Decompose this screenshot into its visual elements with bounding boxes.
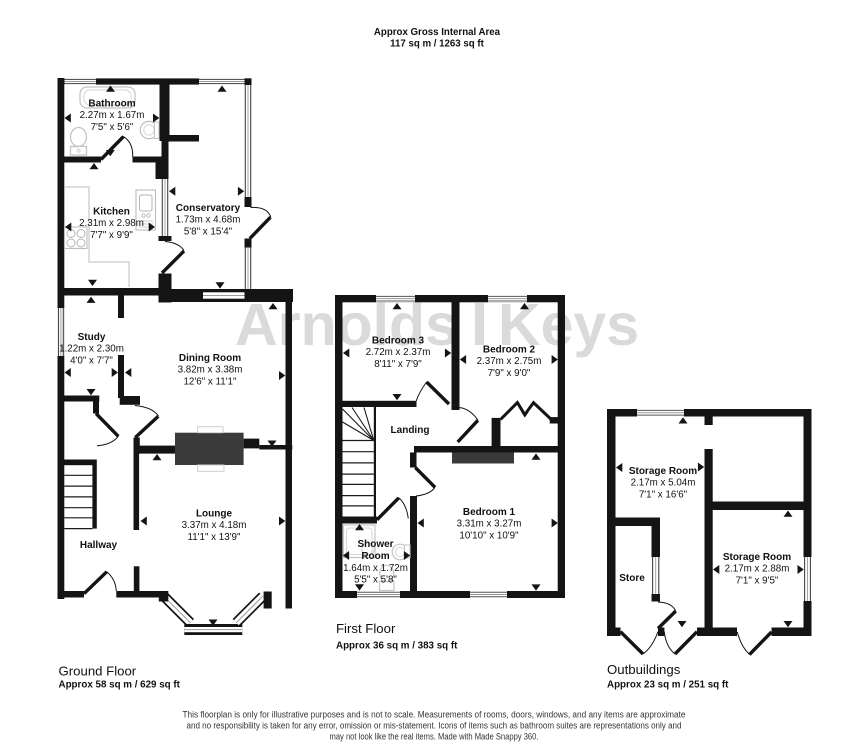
svg-text:7'1" x 9'5": 7'1" x 9'5" (736, 575, 779, 586)
svg-text:Storage Room: Storage Room (723, 552, 791, 563)
svg-text:Approx 58 sq m / 629 sq ft: Approx 58 sq m / 629 sq ft (59, 680, 181, 691)
svg-text:Hallway: Hallway (80, 540, 118, 551)
svg-text:3.37m x 4.18m: 3.37m x 4.18m (182, 520, 247, 531)
svg-text:Ground Floor: Ground Floor (59, 664, 137, 679)
svg-text:Bedroom 3: Bedroom 3 (372, 336, 425, 347)
svg-text:10'10" x 10'9": 10'10" x 10'9" (459, 530, 519, 541)
svg-text:2.72m x 2.37m: 2.72m x 2.37m (366, 347, 431, 358)
svg-text:Room: Room (361, 551, 389, 562)
svg-text:Kitchen: Kitchen (93, 207, 130, 218)
svg-text:1.64m x 1.72m: 1.64m x 1.72m (343, 563, 408, 574)
svg-text:2.27m x 1.67m: 2.27m x 1.67m (80, 110, 145, 121)
svg-text:Store: Store (619, 573, 645, 584)
svg-text:Storage Room: Storage Room (629, 466, 697, 477)
svg-text:Shower: Shower (357, 539, 393, 550)
svg-text:Landing: Landing (391, 425, 430, 436)
svg-text:and no responsibility is taken: and no responsibility is taken for any e… (187, 721, 682, 731)
svg-text:First Floor: First Floor (336, 621, 396, 636)
svg-text:5'8" x 15'4": 5'8" x 15'4" (184, 226, 233, 237)
svg-text:Approx 23 sq m / 251 sq ft: Approx 23 sq m / 251 sq ft (607, 680, 729, 691)
svg-text:Bedroom 1: Bedroom 1 (463, 507, 516, 518)
svg-text:117 sq m / 1263 sq ft: 117 sq m / 1263 sq ft (390, 39, 484, 50)
svg-text:Outbuildings: Outbuildings (607, 662, 681, 677)
svg-text:3.31m x 3.27m: 3.31m x 3.27m (457, 519, 522, 530)
svg-text:4'0" x 7'7": 4'0" x 7'7" (70, 355, 113, 366)
svg-text:1.73m x 4.68m: 1.73m x 4.68m (176, 215, 241, 226)
svg-text:Bedroom 2: Bedroom 2 (483, 345, 536, 356)
svg-text:7'9" x 9'0": 7'9" x 9'0" (488, 368, 531, 379)
svg-text:7'1" x 16'6": 7'1" x 16'6" (639, 489, 688, 500)
svg-text:Approx 36 sq m / 383 sq ft: Approx 36 sq m / 383 sq ft (336, 641, 458, 652)
svg-text:Conservatory: Conservatory (176, 203, 241, 214)
svg-text:Dining Room: Dining Room (179, 353, 241, 364)
svg-text:Approx Gross Internal Area: Approx Gross Internal Area (374, 27, 501, 38)
svg-text:3.82m x 3.38m: 3.82m x 3.38m (178, 365, 243, 376)
svg-text:may not look like the real ite: may not look like the real items. Made w… (330, 732, 539, 742)
svg-text:2.37m x 2.75m: 2.37m x 2.75m (477, 356, 542, 367)
svg-text:8'11" x 7'9": 8'11" x 7'9" (374, 359, 422, 370)
svg-text:Bathroom: Bathroom (88, 99, 135, 110)
svg-text:Lounge: Lounge (196, 509, 233, 520)
svg-text:2.17m x 5.04m: 2.17m x 5.04m (631, 478, 696, 489)
svg-text:2.31m x 2.98m: 2.31m x 2.98m (79, 218, 144, 229)
svg-text:5'5" x 5'8": 5'5" x 5'8" (354, 574, 397, 585)
svg-text:11'1" x 13'9": 11'1" x 13'9" (187, 532, 241, 543)
svg-text:2.17m x 2.88m: 2.17m x 2.88m (725, 564, 790, 575)
svg-text:Study: Study (78, 332, 106, 343)
svg-text:7'5" x 5'6": 7'5" x 5'6" (91, 122, 134, 133)
svg-text:1.22m x 2.30m: 1.22m x 2.30m (59, 344, 124, 355)
svg-text:This floorplan is only for ill: This floorplan is only for illustrative … (183, 710, 686, 720)
svg-text:12'6" x 11'1": 12'6" x 11'1" (183, 376, 237, 387)
svg-text:7'7" x 9'9": 7'7" x 9'9" (90, 230, 133, 241)
